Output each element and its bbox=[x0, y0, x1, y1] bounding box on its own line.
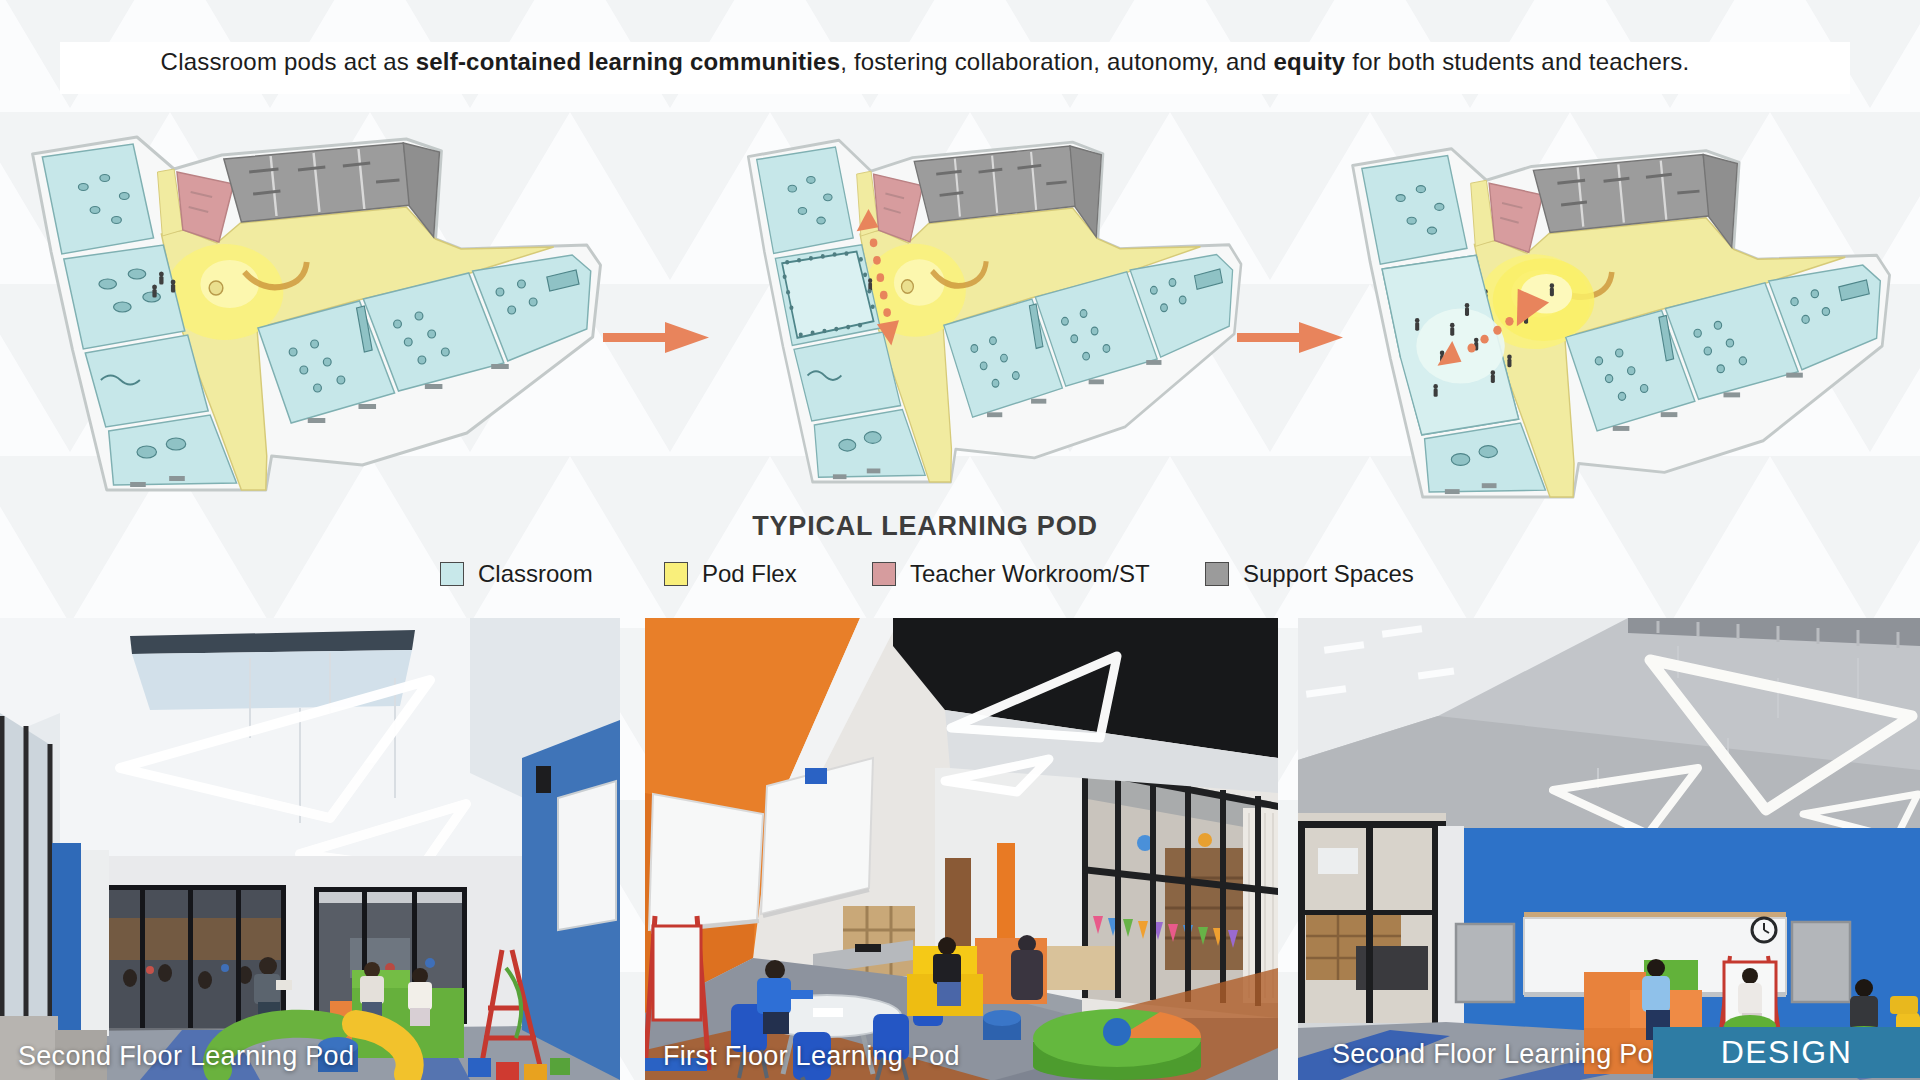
photo-caption: First Floor Learning Pod bbox=[663, 1041, 960, 1072]
floor-plan-step-3 bbox=[1336, 124, 1908, 499]
legend-item-pod-flex: Pod Flex bbox=[664, 560, 797, 588]
photo3-illustration bbox=[1298, 618, 1920, 1080]
legend-item-classroom: Classroom bbox=[440, 560, 593, 588]
green-round-ottoman bbox=[1033, 1009, 1201, 1080]
presentation-slide: Classroom pods act as self-contained lea… bbox=[0, 0, 1920, 1080]
legend-item-teacher-workroom: Teacher Workroom/ST bbox=[872, 560, 1150, 588]
diagram-title: TYPICAL LEARNING POD bbox=[0, 511, 1850, 542]
photo-second-floor-learning-pod-2: Second Floor Learning Pod bbox=[1298, 618, 1920, 1080]
support-spaces-swatch bbox=[1205, 562, 1229, 586]
classroom-swatch bbox=[440, 562, 464, 586]
header-text: Classroom pods act as bbox=[161, 48, 416, 75]
design-section-badge: DESIGN bbox=[1653, 1027, 1920, 1078]
design-badge-label: DESIGN bbox=[1721, 1034, 1853, 1071]
legend-label: Teacher Workroom/ST bbox=[910, 560, 1150, 588]
header-bold-communities: self-contained learning communities bbox=[416, 48, 840, 75]
header-text-middle: , fostering collaboration, autonomy, and bbox=[840, 48, 1273, 75]
legend-item-support-spaces: Support Spaces bbox=[1205, 560, 1414, 588]
legend-label: Support Spaces bbox=[1243, 560, 1414, 588]
flow-arrow-1 bbox=[603, 322, 709, 353]
photo2-illustration bbox=[645, 618, 1278, 1080]
pod-flex-swatch bbox=[664, 562, 688, 586]
photo-first-floor-learning-pod: First Floor Learning Pod bbox=[645, 618, 1278, 1080]
legend-label: Classroom bbox=[478, 560, 593, 588]
header-statement: Classroom pods act as self-contained lea… bbox=[0, 48, 1850, 76]
teacher-workroom-swatch bbox=[872, 562, 896, 586]
header-text-suffix: for both students and teachers. bbox=[1345, 48, 1689, 75]
header-bold-equity: equity bbox=[1274, 48, 1346, 75]
flow-arrow-2 bbox=[1237, 322, 1343, 353]
legend-label: Pod Flex bbox=[702, 560, 797, 588]
wall-clock bbox=[1752, 918, 1776, 942]
photo-caption: Second Floor Learning Pod bbox=[1332, 1039, 1668, 1070]
photo-second-floor-learning-pod-1: Second Floor Learning Pod bbox=[0, 618, 620, 1080]
photo-caption: Second Floor Learning Pod bbox=[18, 1041, 354, 1072]
floor-plan-step-2 bbox=[733, 116, 1258, 484]
glass-office bbox=[1298, 813, 1446, 1023]
photo1-illustration bbox=[0, 618, 620, 1080]
floor-plan-step-1 bbox=[15, 112, 620, 492]
